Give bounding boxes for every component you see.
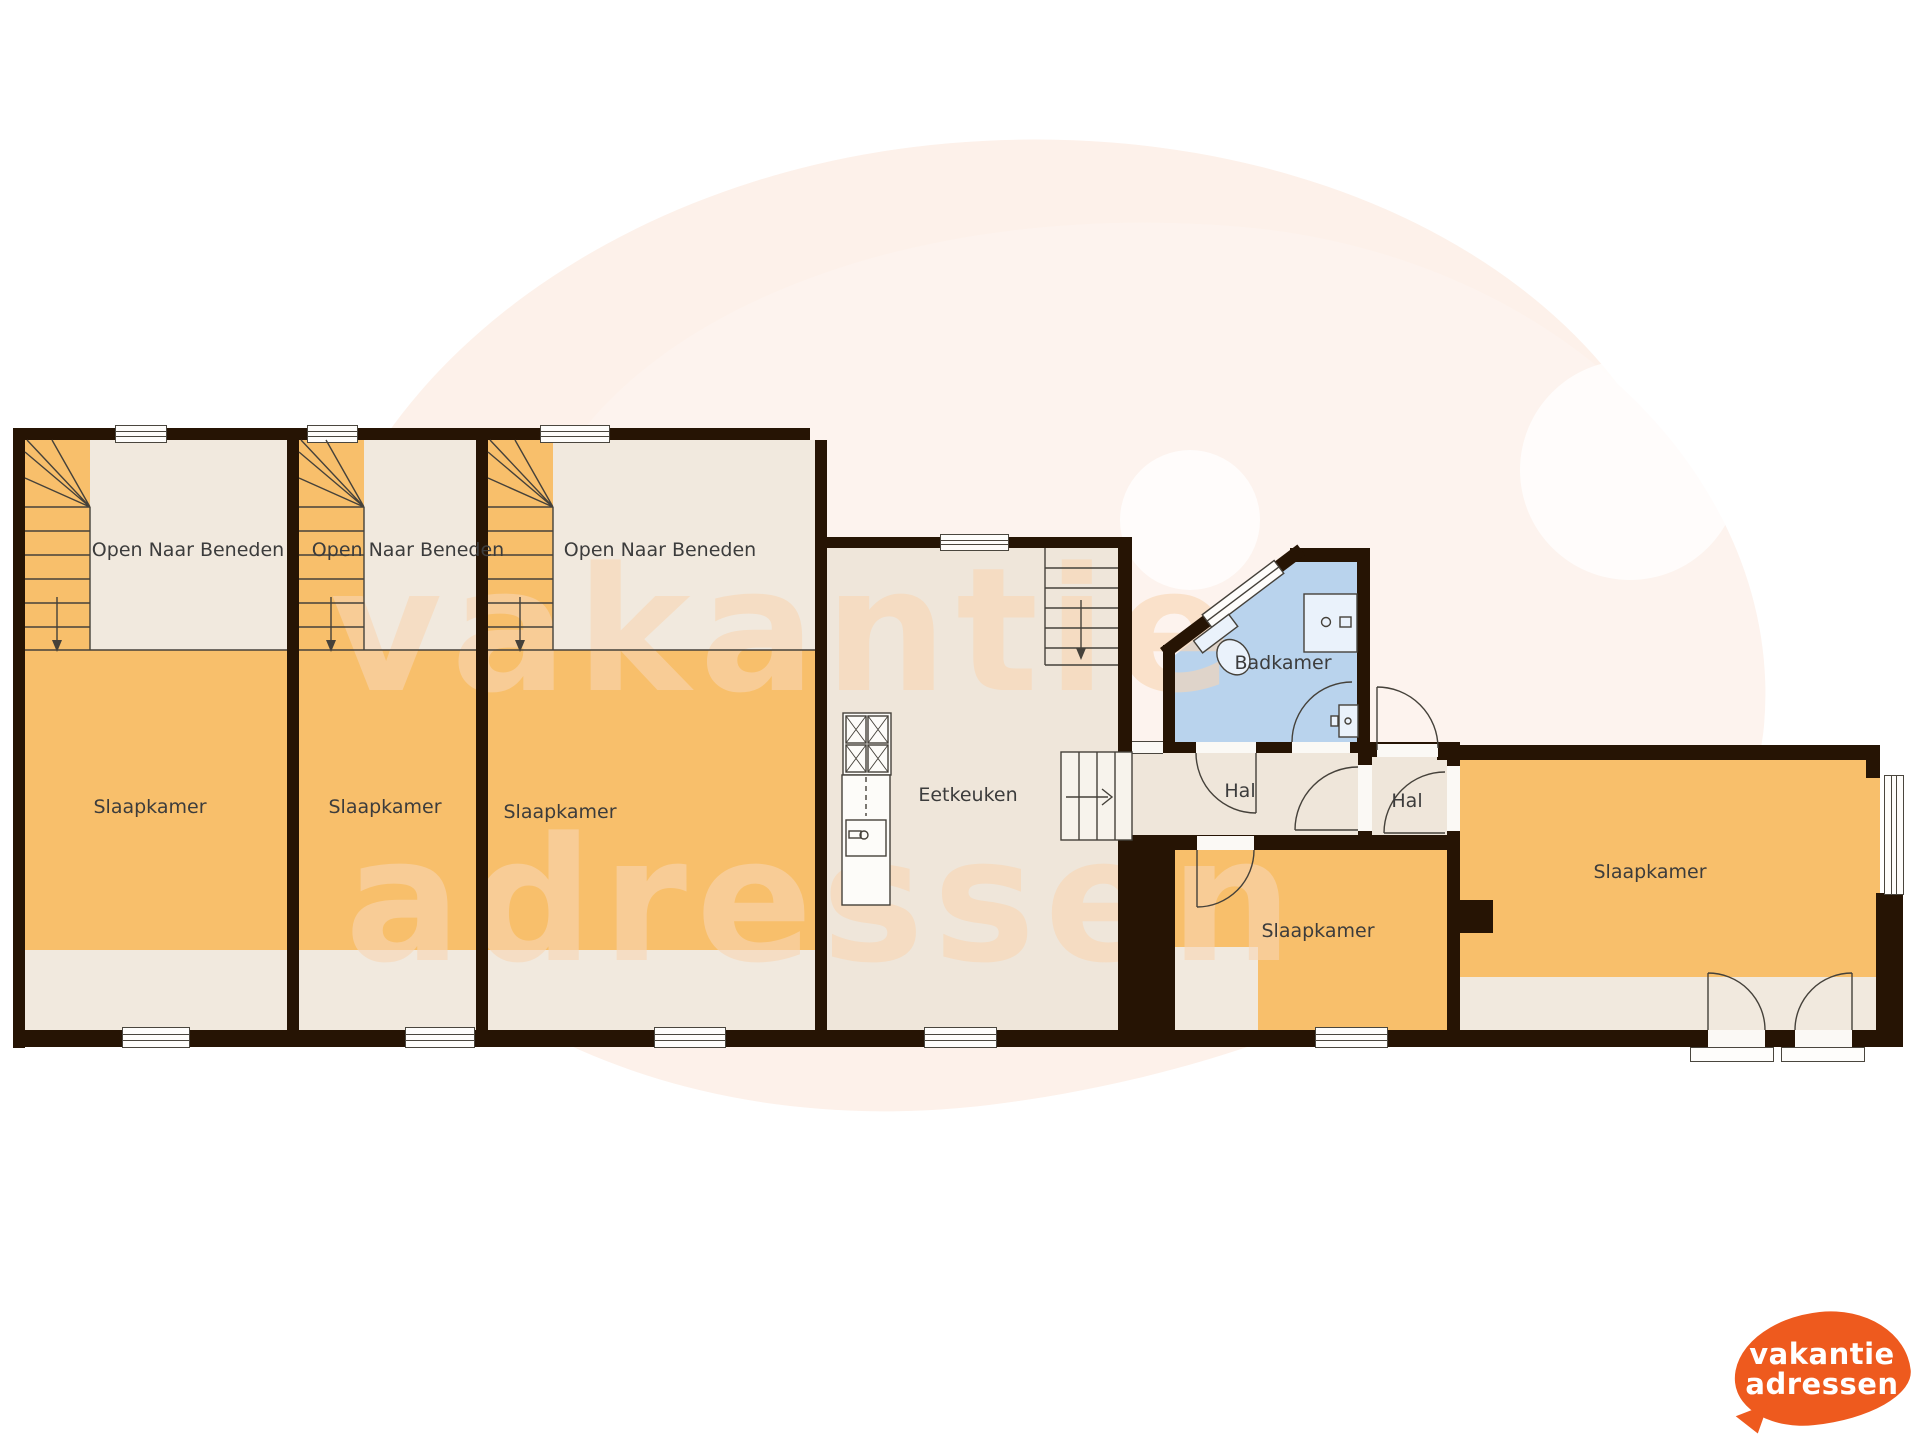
door-bedroom-middle <box>1197 850 1254 907</box>
door-bedroom-right-1 <box>1708 973 1765 1030</box>
door-exterior-hall2 <box>1377 687 1438 750</box>
room-label-hall-1: Hal <box>1224 780 1255 802</box>
room-label-void-3: Open Naar Beneden <box>564 539 756 561</box>
staircase-kitchen <box>1045 548 1118 665</box>
room-label-bedroom-2: Slaapkamer <box>328 796 441 818</box>
bathroom-sink <box>1331 705 1358 737</box>
door-bedroom-right-2 <box>1795 973 1852 1030</box>
room-label-bathroom: Badkamer <box>1234 652 1331 674</box>
room-label-bedroom-middle: Slaapkamer <box>1261 920 1374 942</box>
toilet <box>1194 614 1263 685</box>
bathroom-window-diagonal <box>1202 561 1284 628</box>
logo-text-line-2: adressen <box>1734 1370 1910 1400</box>
room-label-bedroom-right: Slaapkamer <box>1593 861 1706 883</box>
room-label-void-1: Open Naar Beneden <box>92 539 284 561</box>
room-label-bedroom-3: Slaapkamer <box>503 801 616 823</box>
room-label-hall-2: Hal <box>1391 790 1422 812</box>
floorplan-linework <box>0 0 1920 1440</box>
shower <box>1304 594 1357 652</box>
room-label-void-2: Open Naar Beneden <box>312 539 504 561</box>
door-hall1-hall2 <box>1295 767 1358 830</box>
vakantieadressen-logo: vakantie adressen <box>1734 1312 1910 1430</box>
room-label-bedroom-1: Slaapkamer <box>93 796 206 818</box>
logo-text-line-1: vakantie <box>1734 1340 1910 1370</box>
stove <box>843 713 891 775</box>
staircase-connector <box>1061 752 1132 840</box>
kitchen-counter <box>842 775 890 905</box>
room-label-kitchen: Eetkeuken <box>918 784 1017 806</box>
